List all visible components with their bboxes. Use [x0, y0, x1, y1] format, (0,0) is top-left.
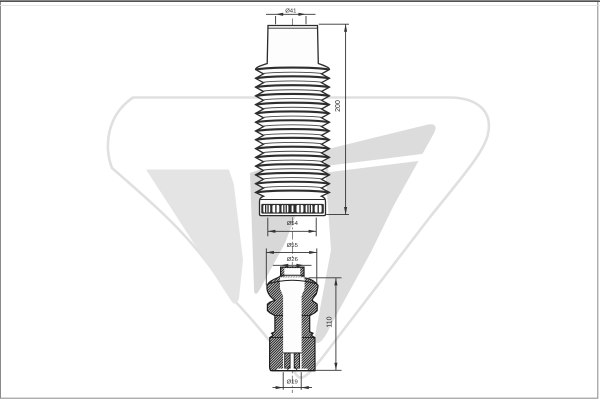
svg-text:110: 110: [326, 316, 333, 327]
svg-text:Ø26: Ø26: [287, 257, 299, 263]
svg-text:Ø54: Ø54: [287, 221, 299, 227]
svg-text:Ø55: Ø55: [287, 243, 299, 249]
svg-text:Ø41: Ø41: [285, 8, 296, 14]
svg-text:200: 200: [335, 100, 342, 112]
svg-text:Ø19: Ø19: [287, 379, 298, 385]
